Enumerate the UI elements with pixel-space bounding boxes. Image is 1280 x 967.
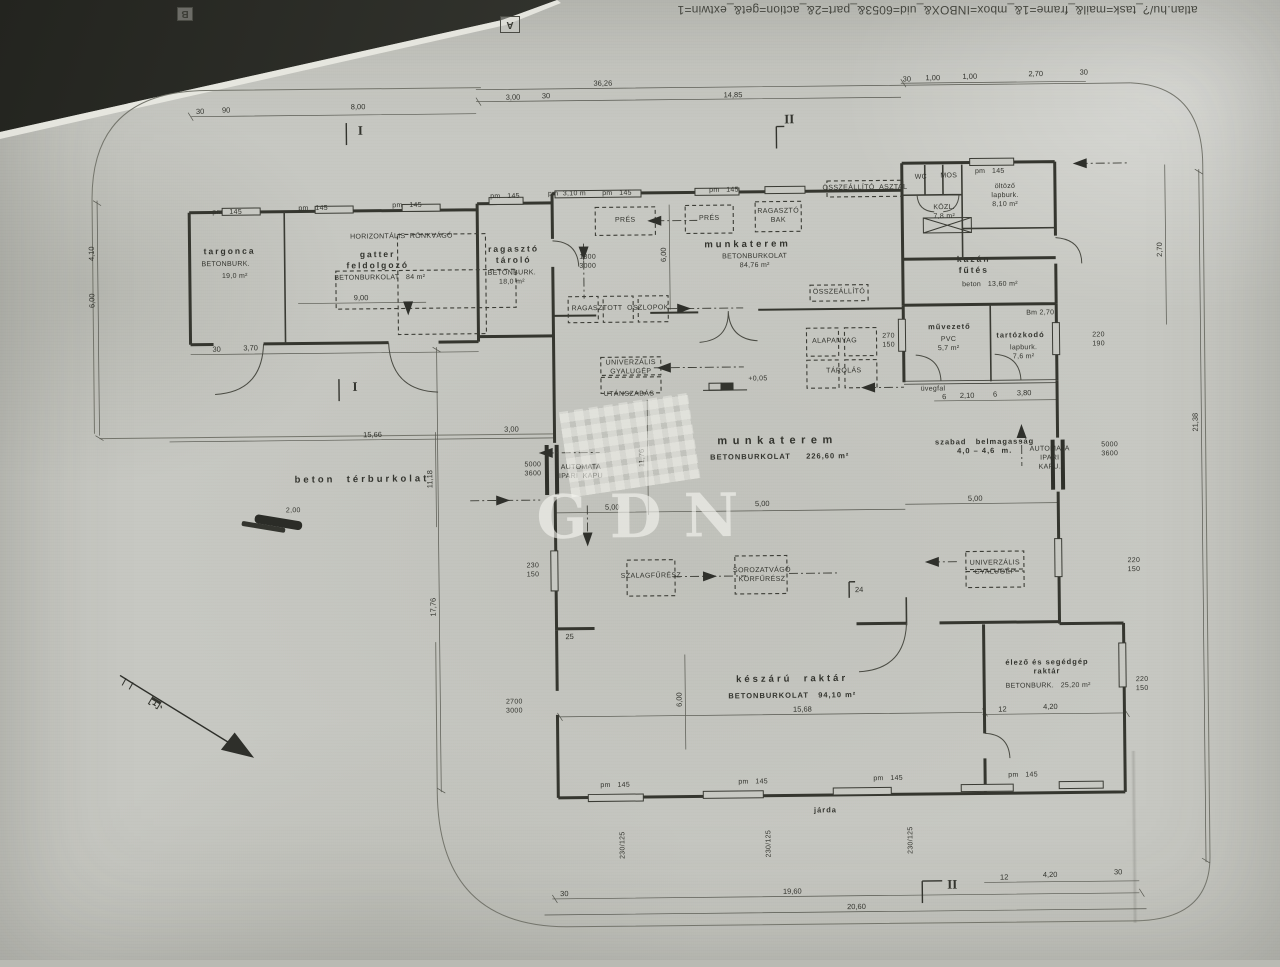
room-tartozkodo: tartózkodó bbox=[996, 330, 1044, 340]
dim-36-26: 36,26 bbox=[593, 79, 612, 89]
tick-30-r2: 30 bbox=[1080, 68, 1088, 77]
dim-2-70-top: 2,70 bbox=[1028, 69, 1043, 79]
room-munkaterem-1: munkaterem bbox=[704, 238, 791, 251]
note-jarda: járda bbox=[814, 805, 837, 815]
finish-keszaru-raktar: BETONBURKOLAT 94,10 m² bbox=[728, 690, 856, 701]
label-automata-kapu-right: AUTOMATA IPARI KAPU. bbox=[1030, 445, 1070, 472]
room-ragaszto-tarolo: ragasztó tároló bbox=[488, 243, 539, 265]
room-mos: MOS bbox=[940, 172, 957, 181]
tick-30-blocka: 30 bbox=[212, 345, 220, 354]
dim-3-70: 3,70 bbox=[243, 343, 258, 353]
win-dim-220-190: 220 190 bbox=[1092, 331, 1105, 349]
machine-pres-2: PRÉS bbox=[699, 215, 720, 224]
finish-gatter: BETONBURKOLAT 84 m² bbox=[334, 274, 425, 284]
dim-8-00: 8,00 bbox=[351, 102, 366, 112]
win-label-7: pm 145 bbox=[975, 168, 1005, 177]
label-automata-kapu-left: AUTOMATA IPARI KAPU bbox=[559, 464, 603, 482]
dim-4-20-a: 4,20 bbox=[1043, 702, 1058, 712]
dim-1-00-b: 1,00 bbox=[962, 72, 977, 82]
note-beton-terburkolat: beton térburkolat bbox=[295, 473, 430, 486]
room-oltozo: öltöző lapburk. 8,10 m² bbox=[991, 183, 1019, 210]
finish-munkaterem-1: BETONBURKOLAT 84,76 m² bbox=[722, 253, 787, 271]
machine-osszeallito-asztal: ÖSSZEÁLLÍTÓ ASZTAL bbox=[822, 184, 907, 194]
dim-20-60: 20,60 bbox=[847, 902, 866, 912]
finish-muvezeto: PVC 5,7 m² bbox=[938, 336, 960, 354]
dim-3-00-mid: 3,00 bbox=[504, 425, 519, 435]
win-label-3: pm 145 bbox=[392, 202, 422, 211]
dim-kapu-right: 5000 3600 bbox=[1101, 441, 1118, 459]
win-dim-230-150: 230 150 bbox=[527, 562, 540, 580]
tick-6-b: 6 bbox=[993, 390, 997, 399]
dim-5-00-a: 5,00 bbox=[605, 503, 620, 513]
win-label-2: pm 145 bbox=[298, 205, 328, 214]
tick-24: 24 bbox=[855, 585, 863, 594]
dim-14-85: 14,85 bbox=[724, 90, 743, 100]
note-szabad-belmagassag: szabad belmagasság 4,0 – 4,6 m. bbox=[935, 436, 1034, 456]
floor-plan: targoncaBETONBURK.19,0 m²gatter feldolgo… bbox=[0, 0, 1280, 967]
finish-tartozkodo: lapburk. 7,6 m² bbox=[1010, 344, 1037, 362]
dim-3-80: 3,80 bbox=[1017, 388, 1032, 398]
tick-12-b: 12 bbox=[1000, 872, 1008, 881]
dim-11-76: 11,76 bbox=[637, 449, 647, 467]
win-label-4: pm 145 bbox=[490, 193, 520, 202]
dim-15-68: 15,68 bbox=[793, 705, 812, 715]
tick-90-left: 90 bbox=[222, 106, 230, 115]
win-label-10: pm 145 bbox=[873, 775, 903, 784]
dim-3-00-top: 3,00 bbox=[506, 93, 521, 103]
machine-sorozatvago-korfuresz: SOROZATVÁGÓ KÖRFŰRÉSZ bbox=[733, 567, 791, 585]
dim-4-10: 4,10 bbox=[87, 246, 97, 261]
section-ii-bottom: II bbox=[947, 877, 957, 893]
win-dim-230-125-b: 230/125 bbox=[765, 830, 774, 857]
dim-5-00-c: 5,00 bbox=[968, 494, 983, 504]
win-label-9: pm 145 bbox=[738, 778, 768, 787]
win-label-5: pm 145 bbox=[602, 190, 632, 199]
dim-2-70-right: 2,70 bbox=[1155, 242, 1165, 257]
plan-labels: targoncaBETONBURK.19,0 m²gatter feldolgo… bbox=[0, 0, 1280, 967]
win-label-8: pm 145 bbox=[600, 782, 630, 791]
win-label-11: pm 145 bbox=[1008, 771, 1038, 780]
scanned-floorplan-page: { "header": { "url": "atlan.hu/?_task=ma… bbox=[0, 0, 1280, 960]
dim-1-00-a: 1,00 bbox=[925, 73, 940, 83]
dim-19-60: 19,60 bbox=[783, 887, 802, 897]
note-level-mark: +0,05 bbox=[748, 375, 767, 384]
win-dim-230-125-c: 230/125 bbox=[907, 826, 916, 853]
machine-szalagfuresz: SZALAGFŰRÉSZ bbox=[621, 572, 682, 581]
dim-9-00: 9,00 bbox=[354, 293, 369, 303]
note-utanszabas: UTÁNSZABÁS bbox=[604, 390, 655, 399]
win-label-1: pm 145 bbox=[212, 209, 242, 218]
dim-21-38: 21,38 bbox=[1191, 413, 1201, 432]
section-i-mid: I bbox=[352, 379, 357, 395]
north-letter: É bbox=[143, 692, 165, 712]
machine-univerzalis-gyalugep-2: UNIVERZÁLIS GYALUGÉP bbox=[970, 559, 1020, 577]
tick-6-a: 6 bbox=[942, 392, 946, 401]
win-dim-270-150: 270 150 bbox=[882, 333, 895, 351]
finish-ragaszto-tarolo: BETONBURK. 18,0 m² bbox=[488, 269, 537, 287]
dim-4-20-b: 4,20 bbox=[1043, 870, 1058, 880]
finish-elezo-raktar: BETONBURK. 25,20 m² bbox=[1006, 682, 1091, 692]
dim-6-00-v3: 6,00 bbox=[87, 293, 97, 308]
room-gatter-feldolgozo: gatter feldolgozó bbox=[346, 249, 409, 271]
tick-30-br: 30 bbox=[1114, 867, 1122, 876]
win-label-6: pm 145 bbox=[709, 187, 739, 196]
tick-30-top1: 30 bbox=[542, 91, 550, 100]
tick-30-r1: 30 bbox=[903, 74, 911, 83]
room-keszaru-raktar: készárú raktár bbox=[736, 673, 848, 686]
dim-17-76: 17,76 bbox=[429, 598, 439, 617]
tick-25: 25 bbox=[565, 632, 573, 641]
note-bm-270: Bm 2,70 bbox=[1026, 309, 1054, 318]
dim-kapu-left: 5000 3600 bbox=[524, 461, 541, 479]
room-muvezeto: művezető bbox=[928, 322, 971, 332]
room-targonca: targonca bbox=[204, 246, 256, 257]
room-kazan-futes: kazán fűtés bbox=[957, 254, 991, 276]
machine-horizontalis-ronkvago: HORIZONTÁLIS RÖNKVÁGÓ bbox=[350, 233, 453, 243]
dim-15-66: 15,66 bbox=[363, 430, 382, 440]
machine-tarolas: TÁROLÁS bbox=[826, 367, 862, 376]
door-dim-1300-3000: 1300 3000 bbox=[579, 254, 596, 272]
machine-alapanyag: ALAPANYAG bbox=[812, 337, 857, 346]
room-munkaterem-2: munkaterem bbox=[717, 434, 838, 449]
machine-pres-1: PRÉS bbox=[615, 217, 636, 226]
room-kozl: KÖZL. 7,8 m² bbox=[933, 204, 955, 222]
finish-munkaterem-2: BETONBURKOLAT 226,60 m² bbox=[710, 451, 849, 462]
machine-univerzalis-gyalugep-1: UNIVERZÁLIS GYALUGÉP bbox=[606, 359, 656, 377]
dim-6-00-v2: 6,00 bbox=[675, 692, 685, 707]
area-targonca: 19,0 m² bbox=[222, 273, 248, 282]
dim-6-00-v1: 6,00 bbox=[659, 247, 669, 262]
win-label-pm-310: pm 3,10 m bbox=[548, 190, 586, 199]
dim-5-00-b: 5,00 bbox=[755, 499, 770, 509]
tick-12-a: 12 bbox=[998, 704, 1006, 713]
machine-ragaszto-bak: RAGASZTÓ BAK bbox=[757, 208, 799, 226]
room-wc: WC bbox=[915, 174, 927, 183]
finish-targonca: BETONBURK. bbox=[201, 261, 249, 270]
tick-30-left: 30 bbox=[196, 107, 204, 116]
section-i-top: I bbox=[358, 123, 363, 139]
tick-30-bottom: 30 bbox=[560, 889, 568, 898]
door-dim-2700-3000: 2700 3000 bbox=[506, 698, 523, 716]
section-ii-top: II bbox=[784, 111, 794, 127]
room-elezo-raktar: élező és segédgép raktár bbox=[1005, 657, 1088, 677]
machine-ragasztott-oszlopok: RAGASZTOTT OSZLOPOK bbox=[572, 304, 669, 314]
dim-11-18: 11,18 bbox=[425, 470, 435, 488]
win-dim-220-150-a: 220 150 bbox=[1128, 557, 1141, 575]
win-dim-230-125-a: 230/125 bbox=[619, 831, 628, 858]
finish-kazan: beton 13,60 m² bbox=[962, 281, 1018, 290]
dim-2-00: 2,00 bbox=[286, 507, 301, 516]
dim-2-10: 2,10 bbox=[960, 391, 975, 401]
win-dim-220-150-b: 220 150 bbox=[1136, 676, 1149, 694]
machine-osszeallito-2: ÖSSZEÁLLÍTÓ bbox=[813, 288, 865, 297]
